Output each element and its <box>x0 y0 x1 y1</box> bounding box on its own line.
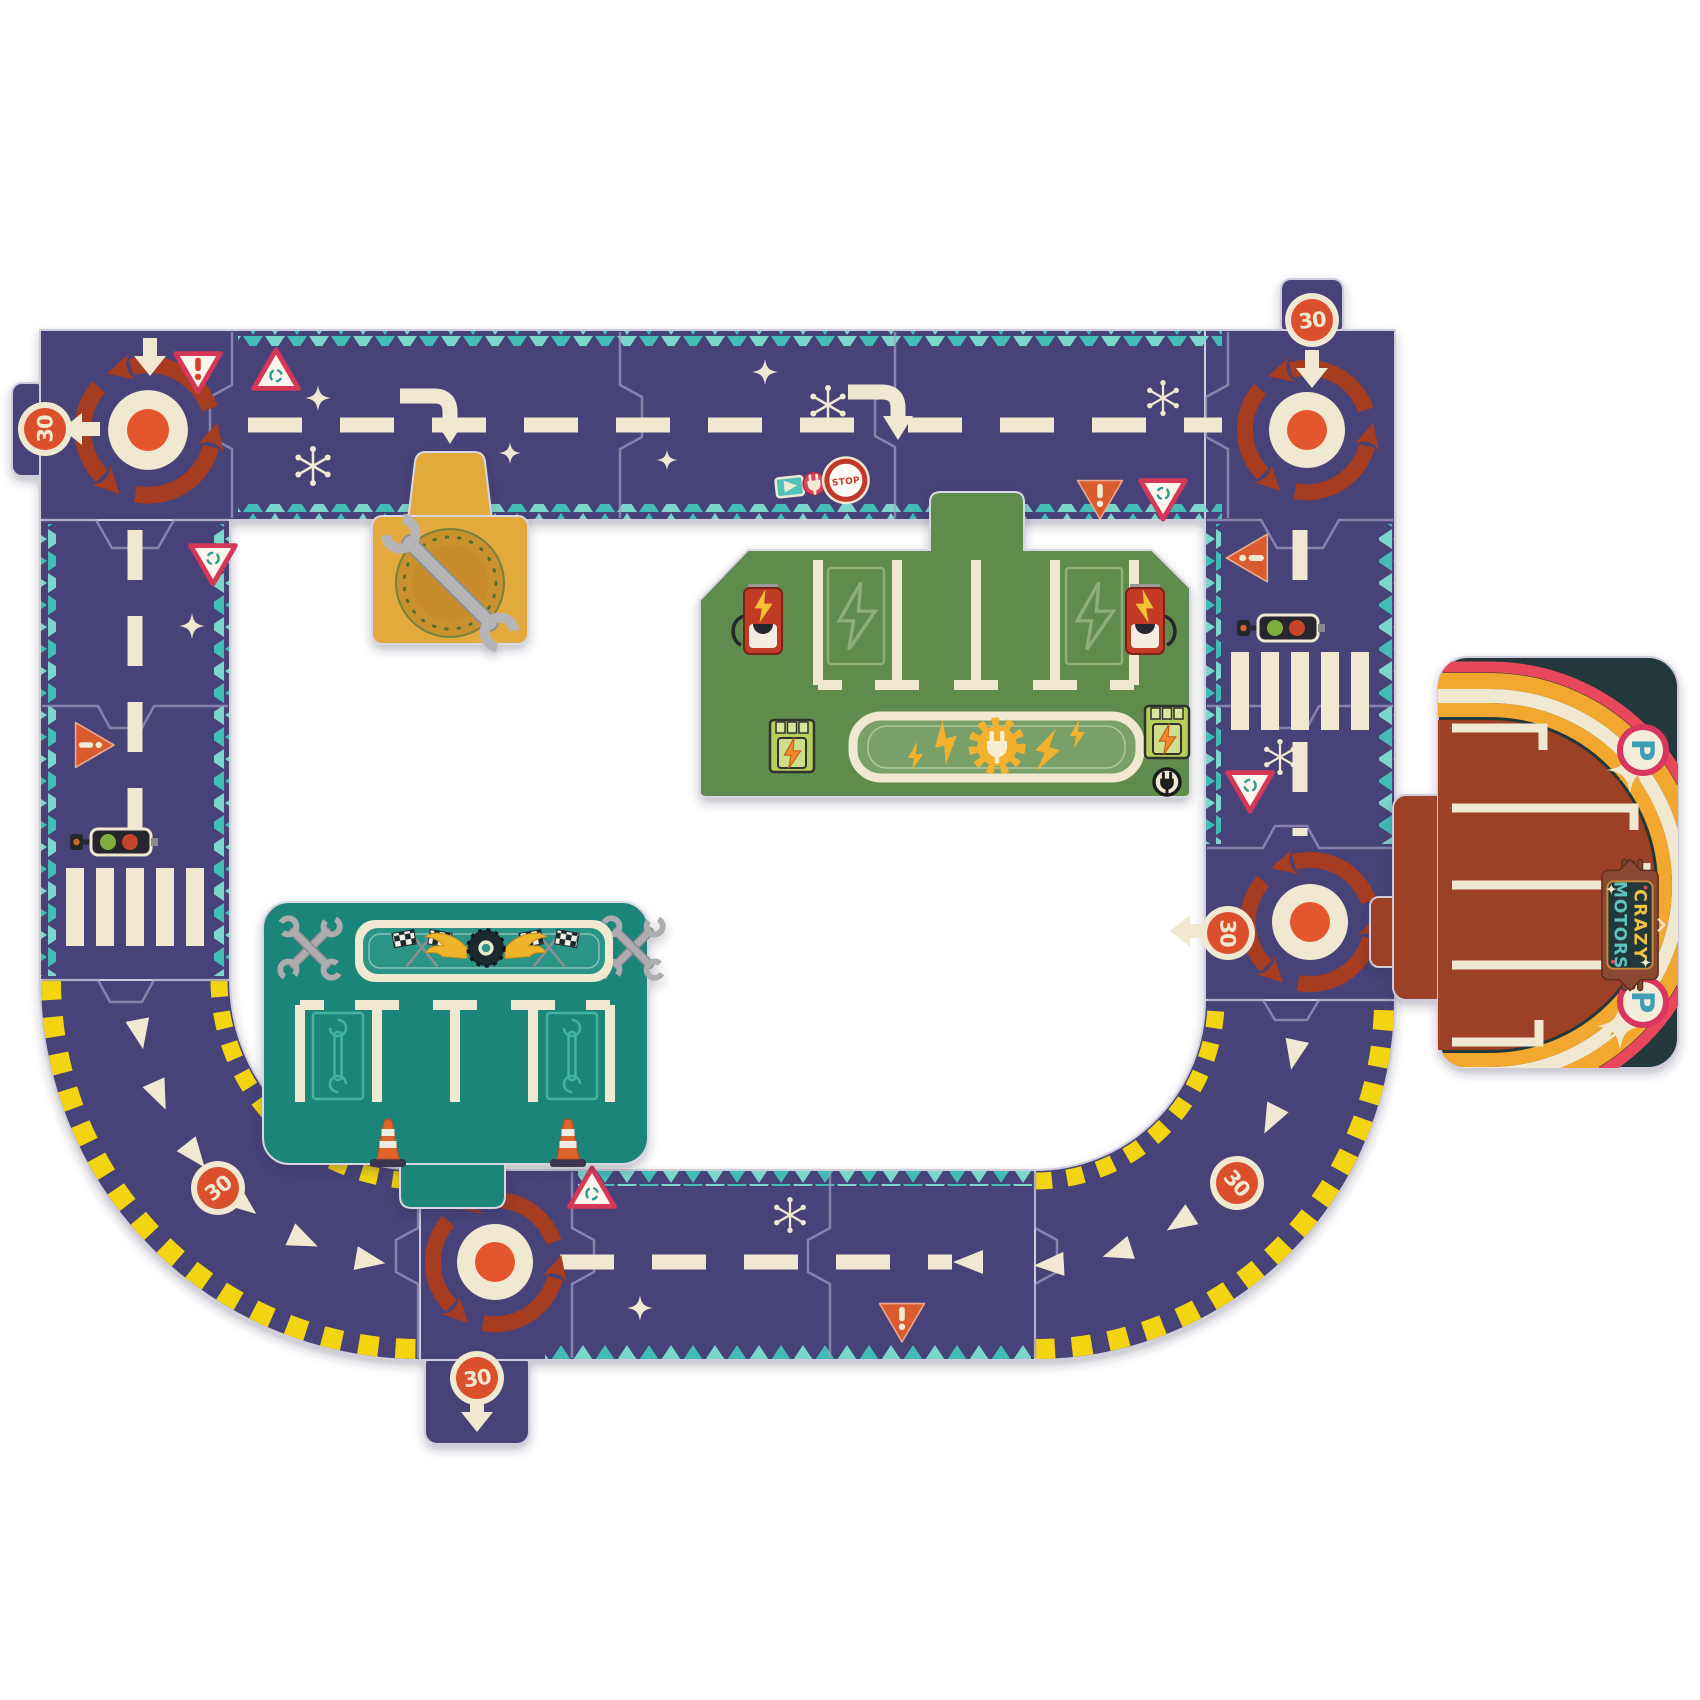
svg-text:30: 30 <box>1216 919 1240 947</box>
svg-text:CRAZY: CRAZY <box>1630 889 1650 961</box>
plug-badge-icon <box>1154 769 1180 795</box>
svg-text:P: P <box>1624 739 1660 762</box>
battery-box-icon <box>770 720 814 772</box>
parking-badge: P <box>1620 727 1666 773</box>
crazy-motors-road-puzzle: STOP 30 30 30 30 30 30 <box>0 0 1700 1700</box>
crazy-motors-logo: CRAZY MOTORS <box>1602 859 1664 990</box>
svg-text:MOTORS: MOTORS <box>1609 881 1629 969</box>
puzzle-scene: STOP 30 30 30 30 30 30 <box>0 0 1700 1700</box>
battery-box-icon <box>1145 706 1189 758</box>
charging-station-piece <box>700 492 1190 797</box>
crazy-motors-parking-piece: P P CRAZY MOTORS <box>1370 657 1700 1103</box>
svg-text:30: 30 <box>462 1365 493 1393</box>
garage-piece <box>263 902 671 1208</box>
charging-banner <box>853 716 1140 778</box>
speed-30-sign-left-stub: 30 <box>18 402 72 456</box>
svg-text:P: P <box>1624 991 1660 1014</box>
speed-30-sign-right-roundabout: 30 <box>1201 906 1255 960</box>
svg-text:30: 30 <box>34 415 58 443</box>
garage-banner <box>355 920 613 982</box>
svg-text:30: 30 <box>1297 307 1327 334</box>
